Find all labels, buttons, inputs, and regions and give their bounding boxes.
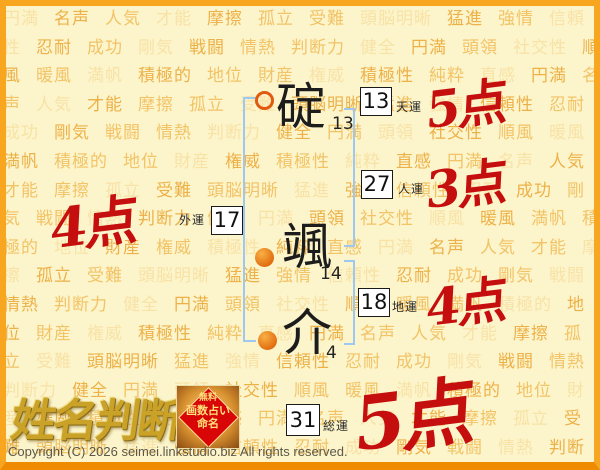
bg-word: 孤立 [189, 95, 225, 115]
bg-word: 満帆 [87, 66, 123, 86]
heaven-luck-label: 天運 [396, 98, 422, 115]
bg-word: 健全 [360, 38, 396, 58]
bg-word: 円満 [378, 238, 414, 258]
bg-word: 頭領 [462, 38, 498, 58]
bg-word: 人気 [480, 238, 516, 258]
bg-word: 暖風 [36, 66, 72, 86]
givenname-char1-strokes: 14 [320, 264, 342, 284]
bg-word: 財産 [36, 324, 72, 344]
bg-word: 純粋 [207, 324, 243, 344]
bg-word: 強情 [225, 352, 261, 372]
bg-word: 忍耐 [36, 38, 72, 58]
bg-word: 受難 [36, 352, 72, 372]
bg-word: 権威 [87, 324, 123, 344]
bg-word: 才能 [87, 95, 123, 115]
bg-word: 社交性 [513, 38, 567, 58]
bg-word: 才能 [156, 9, 192, 29]
bg-word: 成功 [3, 123, 39, 143]
bg-word: 頭脳明晰 [138, 266, 210, 286]
bg-word: 権威 [156, 238, 192, 258]
bg-word: 積極性 [360, 66, 414, 86]
person-luck-score: 3点 [424, 141, 508, 224]
bg-word: 人気 [105, 9, 141, 29]
seimei-handan-result-page: 円満名声人気才能摩擦孤立受難頭脳明晰猛進強情信頼性忍耐成功剛気戦闘情熱判断力健全… [0, 0, 600, 470]
bg-word: 満帆 [531, 209, 567, 229]
bg-word: 名声 [429, 238, 465, 258]
outer-luck-value-box: 17 [211, 206, 243, 235]
bg-word: 名声 [54, 9, 90, 29]
bg-word: 積極性 [138, 324, 192, 344]
total-luck-label: 総運 [323, 417, 349, 434]
bg-word: 忍耐 [549, 95, 585, 115]
bg-word: 受難 [156, 181, 192, 201]
bg-word: 摩擦 [138, 95, 174, 115]
person-luck-value-box: 27 [361, 170, 393, 199]
ground-luck-bracket [344, 260, 355, 345]
bg-word: 情熱 [549, 352, 585, 372]
bg-word: 情熱 [3, 295, 39, 315]
bg-word: 円満 [531, 66, 567, 86]
bg-word: 円満 [174, 295, 210, 315]
surname-char: 碇 [276, 82, 326, 132]
bg-word: 人気 [36, 95, 72, 115]
heaven-luck-value-box: 13 [360, 87, 392, 116]
bg-word: 剛気 [138, 38, 174, 58]
surname-char-strokes: 13 [332, 114, 354, 134]
outer-luck-label: 外運 [179, 211, 205, 228]
bg-word: 戦闘 [498, 352, 534, 372]
bg-word: 才能 [3, 181, 39, 201]
bg-word: 孤立 [36, 266, 72, 286]
bg-word: 頭脳明晰 [87, 352, 159, 372]
bg-word: 孤立 [513, 409, 549, 429]
badge-line2: 画数占い [177, 404, 239, 417]
givenname-char2-strokes: 4 [326, 343, 337, 363]
bg-word: 積極的 [54, 152, 108, 172]
bg-word: 財産 [174, 152, 210, 172]
ground-luck-label: 地運 [392, 298, 418, 315]
bg-word: 強情 [498, 9, 534, 29]
bg-word: 孤立 [258, 9, 294, 29]
givenname-char2: 介 [282, 308, 332, 358]
copyright-text: Copyright (C) 2026 seimei.linkstudio.biz… [8, 444, 348, 459]
bg-word: 名声 [360, 324, 396, 344]
person-luck-label: 人運 [398, 180, 424, 197]
bg-word: 成功 [87, 38, 123, 58]
badge-text: 無料 画数占い 命名 [177, 393, 239, 430]
total-luck-score: 5点 [352, 350, 478, 470]
heaven-luck-score: 5点 [424, 61, 508, 144]
bg-word: 判断力 [54, 295, 108, 315]
bg-word: 猛進 [174, 352, 210, 372]
bg-word: 社交性 [360, 209, 414, 229]
bg-word: 受難 [309, 9, 345, 29]
bg-word: 地位 [207, 66, 243, 86]
givenname-char1-dot-icon [255, 248, 274, 267]
bg-word: 満帆 [3, 152, 39, 172]
bg-word: 人気 [549, 152, 585, 172]
bg-word: 摩擦 [513, 324, 549, 344]
site-logo[interactable]: 姓名判断 [7, 384, 184, 449]
bg-word: 情熱 [240, 38, 276, 58]
bg-word: 順風 [294, 381, 330, 401]
bg-word: 円満 [411, 38, 447, 58]
bg-word: 摩擦 [207, 9, 243, 29]
free-naming-badge[interactable]: 無料 画数占い 命名 [176, 385, 240, 449]
bg-word: 猛進 [294, 181, 330, 201]
bg-word: 受難 [87, 266, 123, 286]
bg-word: 情熱 [498, 438, 534, 458]
bg-word: 才能 [531, 238, 567, 258]
bg-word: 判断力 [291, 38, 345, 58]
outer-luck-bracket [243, 97, 256, 342]
total-luck-value-box: 31 [286, 404, 320, 436]
bg-word: 暖風 [549, 123, 585, 143]
ground-luck-score: 4点 [424, 259, 508, 342]
bg-word: 積極性 [276, 152, 330, 172]
surname-char-ring-icon [255, 91, 274, 110]
ground-luck-value-box: 18 [358, 288, 390, 317]
bg-word: 頭領 [378, 123, 414, 143]
badge-line1: 無料 [177, 393, 239, 404]
givenname-char2-dot-icon [258, 331, 277, 350]
bg-word: 円満 [3, 9, 39, 29]
bg-word: 猛進 [447, 9, 483, 29]
bg-word: 戦闘 [105, 123, 141, 143]
bg-word: 健全 [123, 295, 159, 315]
outer-luck-score: 4点 [48, 174, 139, 265]
bg-word: 地位 [123, 152, 159, 172]
bg-word: 戦闘 [549, 266, 585, 286]
bg-word: 成功 [516, 181, 552, 201]
badge-line3: 命名 [177, 417, 239, 430]
bg-word: 頭脳明晰 [360, 9, 432, 29]
bg-word: 積極的 [138, 66, 192, 86]
bg-word: 地位 [516, 381, 552, 401]
bg-word: 剛気 [54, 123, 90, 143]
bg-word: 情熱 [156, 123, 192, 143]
bg-word: 戦闘 [189, 38, 225, 58]
